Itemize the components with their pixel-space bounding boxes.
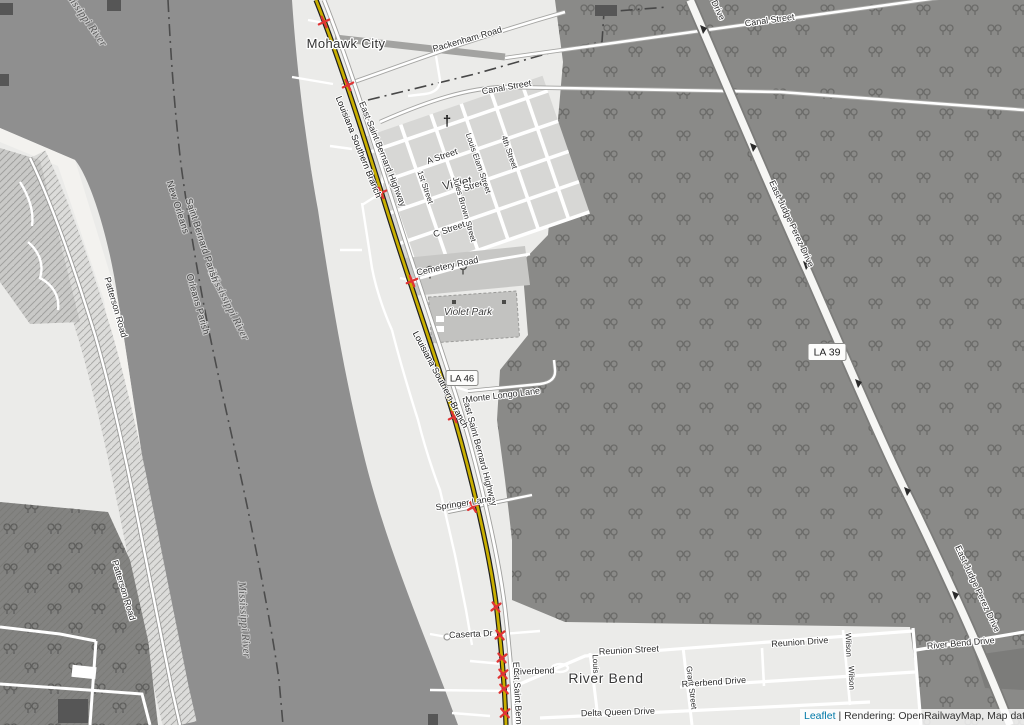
attribution-separator: | <box>836 710 845 722</box>
label-wilson-1: Wilson <box>844 633 854 657</box>
openrailwaymap-text: OpenRailwayMap <box>898 710 981 722</box>
label-riverbend: Riverbend <box>513 665 554 676</box>
shield-la46: LA 46 <box>446 371 478 386</box>
map-viewport[interactable]: † Mohawk City Packenham Road Canal Stree… <box>0 0 1024 725</box>
map-canvas: † Mohawk City Packenham Road Canal Stree… <box>0 0 1024 725</box>
church-icon: † <box>443 113 451 130</box>
label-violet-park: Violet Park <box>444 307 493 318</box>
leaflet-link[interactable]: Leaflet <box>804 710 836 722</box>
attribution-mapdata-prefix: , Map data © <box>981 710 1024 722</box>
building <box>71 665 96 679</box>
shield-la46-text: LA 46 <box>450 374 474 385</box>
orchard-trees <box>497 0 1024 725</box>
label-mohawk-city: Mohawk City <box>307 36 386 51</box>
shield-la39: LA 39 <box>808 344 846 361</box>
attribution-rendering-prefix: Rendering: <box>844 710 898 722</box>
shield-la39-text: LA 39 <box>814 347 841 359</box>
label-river-bend: River Bend <box>568 670 643 686</box>
park-building <box>436 316 444 322</box>
attribution-bar: Leaflet | Rendering: OpenRailwayMap, Map… <box>800 709 1024 725</box>
label-wilson-2: Wilson <box>847 666 857 690</box>
label-louis: Louis <box>591 654 601 673</box>
